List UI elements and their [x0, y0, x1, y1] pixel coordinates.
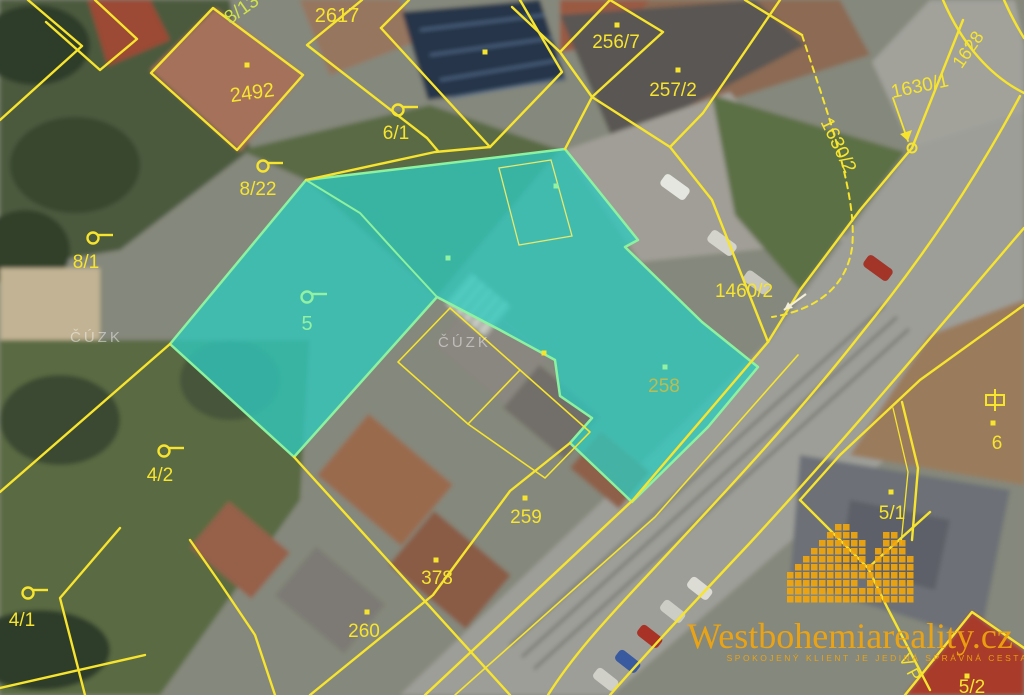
logo-block	[851, 588, 858, 595]
logo-block	[819, 596, 826, 603]
dot-symbol	[245, 63, 250, 68]
logo-block	[843, 564, 850, 571]
logo-block	[819, 548, 826, 555]
cadastral-map-canvas[interactable]: 8/13261724926/18/228/15256/7257/21630/11…	[0, 0, 1024, 695]
logo-block	[811, 580, 818, 587]
parcel-label: 6/1	[383, 123, 409, 144]
logo-block	[891, 596, 898, 603]
agency-watermark: ČÚZK	[70, 329, 123, 346]
parcel-label: 5/1	[879, 503, 905, 524]
logo-block	[819, 588, 826, 595]
logo-block	[803, 588, 810, 595]
logo-block	[851, 540, 858, 547]
logo-block	[795, 596, 802, 603]
logo-block	[787, 580, 794, 587]
logo-block	[875, 564, 882, 571]
logo-block	[835, 540, 842, 547]
parcel-label: 8/22	[240, 179, 277, 200]
dot-symbol	[676, 68, 681, 73]
logo-block	[843, 588, 850, 595]
logo-block	[899, 564, 906, 571]
logo-block	[867, 588, 874, 595]
logo-block	[883, 588, 890, 595]
logo-block	[891, 572, 898, 579]
logo-block	[843, 556, 850, 563]
logo-block	[819, 556, 826, 563]
dot-symbol	[446, 256, 451, 261]
logo-block	[859, 572, 866, 579]
logo-block	[907, 556, 914, 563]
logo-block	[803, 572, 810, 579]
logo-block	[907, 580, 914, 587]
dot-symbol	[663, 365, 668, 370]
logo-block	[859, 564, 866, 571]
logo-block	[851, 572, 858, 579]
logo-block	[899, 540, 906, 547]
logo-block	[803, 564, 810, 571]
logo-block	[851, 596, 858, 603]
logo-block	[851, 580, 858, 587]
logo-block	[851, 532, 858, 539]
logo-block	[827, 556, 834, 563]
dot-symbol	[615, 23, 620, 28]
logo-block	[907, 572, 914, 579]
logo-block	[891, 548, 898, 555]
logo-block	[819, 540, 826, 547]
logo-block	[875, 580, 882, 587]
logo-block	[899, 556, 906, 563]
dot-symbol	[523, 496, 528, 501]
logo-block	[883, 564, 890, 571]
logo-block	[835, 548, 842, 555]
logo-block	[787, 572, 794, 579]
logo-block	[875, 556, 882, 563]
logo-block	[835, 564, 842, 571]
logo-block	[891, 588, 898, 595]
parcel-label: 259	[510, 507, 542, 528]
logo-block	[899, 548, 906, 555]
logo-block	[851, 548, 858, 555]
parcel-label: 4/2	[147, 465, 173, 486]
logo-block	[811, 572, 818, 579]
parcel-label: 256/7	[592, 32, 640, 53]
logo-block	[843, 540, 850, 547]
logo-block	[851, 564, 858, 571]
logo-block	[811, 564, 818, 571]
logo-block	[883, 596, 890, 603]
logo-block	[843, 524, 850, 531]
logo-block	[827, 532, 834, 539]
logo-block	[835, 580, 842, 587]
logo-block	[795, 564, 802, 571]
logo-block	[883, 532, 890, 539]
logo-block	[811, 548, 818, 555]
brand-slogan: SPOKOJENÝ KLIENT JE JEDINÁ SPRÁVNÁ CESTA…	[727, 653, 1024, 663]
logo-block	[891, 532, 898, 539]
logo-block	[835, 556, 842, 563]
parcel-label: 2617	[315, 5, 360, 27]
parcel-label: 1460/2	[715, 281, 773, 302]
logo-block	[899, 580, 906, 587]
logo-block	[843, 572, 850, 579]
dot-symbol	[554, 184, 559, 189]
logo-block	[803, 596, 810, 603]
logo-block	[835, 588, 842, 595]
logo-block	[835, 532, 842, 539]
logo-block	[883, 580, 890, 587]
logo-block	[907, 564, 914, 571]
dot-symbol	[991, 421, 996, 426]
logo-block	[883, 548, 890, 555]
dot-symbol	[542, 351, 547, 356]
cadastral-map-viewport[interactable]: 8/13261724926/18/228/15256/7257/21630/11…	[0, 0, 1024, 695]
parcel-label: 258	[648, 376, 680, 397]
parcel-label: 5/2	[959, 677, 985, 695]
logo-block	[883, 556, 890, 563]
logo-block	[819, 572, 826, 579]
dot-symbol	[434, 558, 439, 563]
logo-block	[827, 572, 834, 579]
logo-block	[891, 580, 898, 587]
logo-block	[867, 596, 874, 603]
logo-block	[875, 596, 882, 603]
dot-symbol	[365, 610, 370, 615]
logo-block	[899, 572, 906, 579]
logo-block	[811, 596, 818, 603]
logo-block	[899, 596, 906, 603]
logo-block	[795, 572, 802, 579]
logo-block	[867, 572, 874, 579]
brand-name: Westbohemiareality.cz	[687, 616, 1013, 656]
logo-block	[811, 556, 818, 563]
logo-block	[835, 524, 842, 531]
logo-block	[819, 580, 826, 587]
dot-symbol	[483, 50, 488, 55]
logo-block	[859, 540, 866, 547]
logo-block	[843, 548, 850, 555]
parcel-label: 378	[421, 568, 453, 589]
logo-block	[835, 572, 842, 579]
logo-block	[899, 588, 906, 595]
logo-block	[787, 588, 794, 595]
logo-block	[787, 596, 794, 603]
logo-block	[859, 556, 866, 563]
parcel-label: 5	[301, 313, 312, 335]
parcel-label: 257/2	[649, 80, 697, 101]
parcel-label: 260	[348, 621, 380, 642]
dot-symbol	[889, 490, 894, 495]
logo-block	[827, 596, 834, 603]
parcel-label: 8/1	[73, 252, 99, 273]
agency-watermark: ČÚZK	[438, 334, 491, 351]
parcel-label: 4/1	[9, 610, 35, 631]
logo-block	[907, 588, 914, 595]
logo-block	[827, 540, 834, 547]
logo-block	[843, 580, 850, 587]
logo-block	[907, 596, 914, 603]
logo-block	[851, 556, 858, 563]
logo-block	[803, 556, 810, 563]
logo-block	[827, 580, 834, 587]
logo-block	[891, 540, 898, 547]
logo-block	[883, 572, 890, 579]
logo-block	[811, 588, 818, 595]
logo-block	[827, 564, 834, 571]
logo-block	[835, 596, 842, 603]
logo-block	[859, 548, 866, 555]
logo-block	[883, 540, 890, 547]
logo-block	[795, 580, 802, 587]
logo-block	[891, 564, 898, 571]
logo-block	[795, 588, 802, 595]
logo-block	[867, 564, 874, 571]
logo-block	[891, 556, 898, 563]
logo-block	[875, 548, 882, 555]
logo-block	[859, 588, 866, 595]
logo-block	[827, 548, 834, 555]
logo-block	[843, 532, 850, 539]
logo-block	[875, 588, 882, 595]
logo-block	[875, 572, 882, 579]
logo-block	[843, 596, 850, 603]
parcel-label: 6	[992, 433, 1003, 454]
logo-block	[803, 580, 810, 587]
logo-block	[867, 580, 874, 587]
logo-block	[819, 564, 826, 571]
logo-block	[859, 596, 866, 603]
logo-block	[827, 588, 834, 595]
